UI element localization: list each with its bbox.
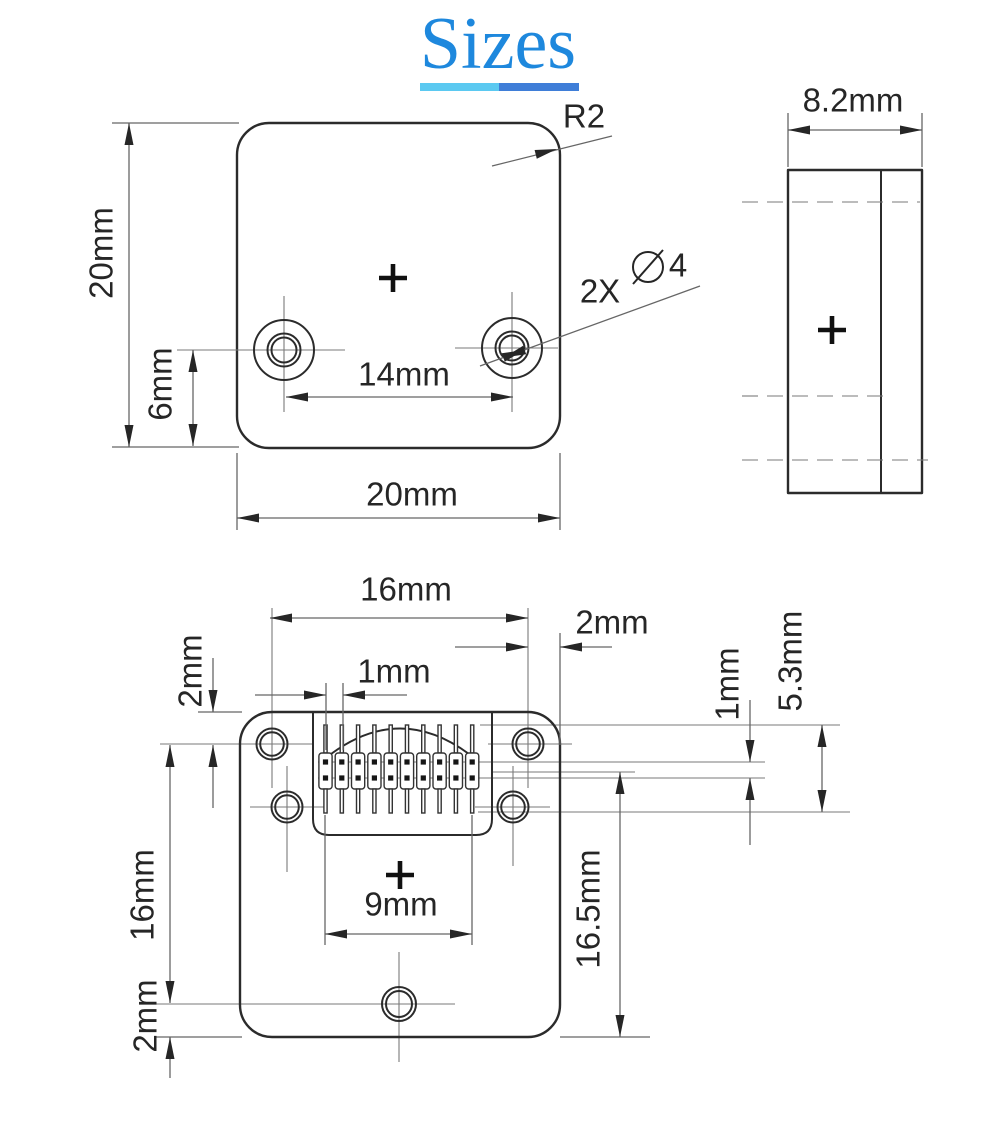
pin-bottom-lead: [373, 789, 376, 813]
technical-drawing-canvas: Sizes: [0, 0, 1000, 1124]
pin-pad: [388, 775, 393, 780]
pin-pad: [437, 775, 442, 780]
dim-label-back-pin-height: 5.3mm: [772, 611, 809, 712]
pin-pad: [356, 759, 361, 764]
dim-label-front-width: 20mm: [366, 476, 458, 513]
pin-top-lead: [357, 725, 360, 753]
pin-top-lead: [471, 725, 474, 753]
pin-pad: [404, 775, 409, 780]
pin-bottom-lead: [389, 789, 392, 813]
pin-pad: [421, 775, 426, 780]
page-background: [0, 0, 1000, 1124]
pin-top-lead: [438, 725, 441, 753]
pin-top-lead: [373, 725, 376, 753]
pin-body: [352, 753, 365, 789]
pin-body: [449, 753, 462, 789]
dim-label-front-height: 20mm: [83, 207, 120, 299]
pin-body: [400, 753, 413, 789]
pin-pad: [388, 759, 393, 764]
pin-top-lead: [422, 725, 425, 753]
dim-label-front-hole-count: 2X: [580, 273, 620, 310]
pin-pad: [372, 775, 377, 780]
dim-label-front-hole-diameter: 4: [669, 247, 687, 284]
pin-body: [319, 753, 332, 789]
pin-body: [384, 753, 397, 789]
pin-pad: [356, 775, 361, 780]
dim-label-back-connector-offset: 16.5mm: [570, 849, 607, 968]
pin-pad: [470, 775, 475, 780]
pin-pad: [470, 759, 475, 764]
pin-bottom-lead: [340, 789, 343, 813]
pin-pad: [437, 759, 442, 764]
pin-pad: [453, 775, 458, 780]
pin-pad: [323, 759, 328, 764]
pin-bottom-lead: [438, 789, 441, 813]
pin-top-lead: [405, 725, 408, 753]
page-title: Sizes: [420, 3, 576, 85]
title-group: Sizes: [420, 3, 579, 91]
pin-pad: [453, 759, 458, 764]
dim-label-back-row-pitch: 1mm: [709, 647, 746, 720]
dim-label-back-hole-spacing-v: 16mm: [124, 849, 161, 941]
dim-label-back-bottom-hole-offset: 2mm: [127, 979, 164, 1052]
pin-top-lead: [454, 725, 457, 753]
pin-pad: [323, 775, 328, 780]
pin-bottom-lead: [422, 789, 425, 813]
pin-top-lead: [389, 725, 392, 753]
pin-bottom-lead: [405, 789, 408, 813]
pin-body: [433, 753, 446, 789]
dim-label-side-thickness: 8.2mm: [803, 82, 904, 119]
dim-label-back-pin-span: 9mm: [364, 886, 437, 923]
pin-body: [466, 753, 479, 789]
pin-body: [368, 753, 381, 789]
pin-body: [335, 753, 348, 789]
pin-bottom-lead: [324, 789, 327, 813]
pin-pad: [404, 759, 409, 764]
pin-pad: [339, 775, 344, 780]
title-underline-left: [420, 83, 499, 91]
pin-bottom-lead: [471, 789, 474, 813]
drawing-page: Sizes: [0, 0, 1000, 1124]
dim-label-back-edge-offset: 2mm: [575, 604, 648, 641]
pin-body: [417, 753, 430, 789]
dim-label-front-corner-radius: R2: [563, 98, 605, 135]
title-underline-right: [499, 83, 579, 91]
dim-label-back-hole-spacing-h: 16mm: [360, 571, 452, 608]
dim-label-back-pin-pitch: 1mm: [357, 653, 430, 690]
dim-label-back-top-offset: 2mm: [172, 634, 209, 707]
dim-label-front-hole-spacing: 14mm: [358, 356, 450, 393]
dim-label-front-hole-offset: 6mm: [142, 347, 179, 420]
pin-pad: [421, 759, 426, 764]
pin-bottom-lead: [454, 789, 457, 813]
pin-pad: [339, 759, 344, 764]
pin-pad: [372, 759, 377, 764]
pin-bottom-lead: [357, 789, 360, 813]
